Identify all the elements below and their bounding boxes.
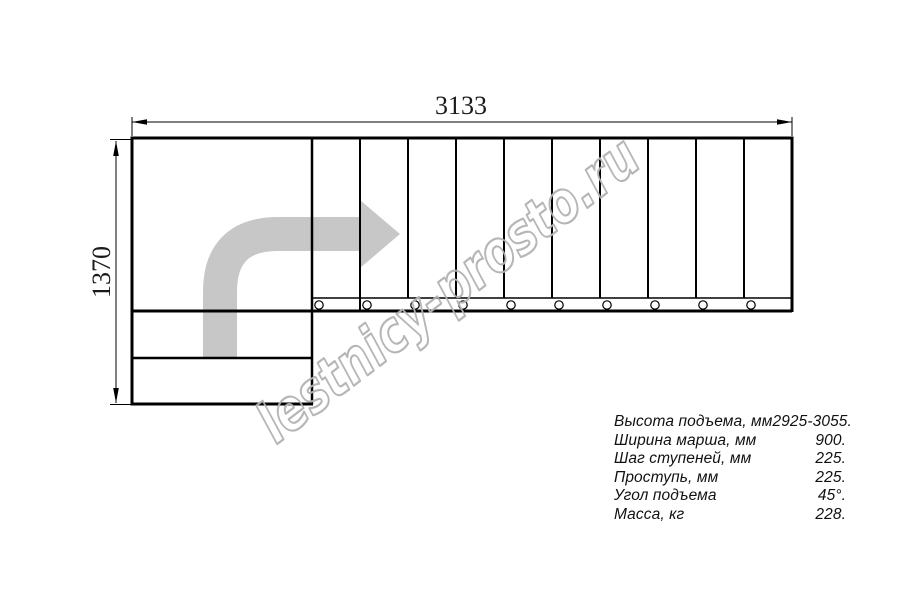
spec-row-tread-depth: Проступь, мм 225.: [614, 469, 846, 488]
spec-value: 225.: [815, 469, 846, 488]
spec-value: 2925-3055.: [772, 413, 851, 432]
spec-row-flight-width: Ширина марша, мм 900.: [614, 432, 846, 451]
stair-drawing-page: 3133 1370 lestnicy-prosto.ru Высота подъ…: [0, 0, 900, 600]
dimension-arrow-left: [132, 119, 147, 125]
spec-value: 225.: [815, 450, 846, 469]
spec-row-step-pitch: Шаг ступеней, мм 225.: [614, 450, 846, 469]
spec-label: Шаг ступеней, мм: [614, 450, 751, 469]
dimension-arrow-right: [777, 119, 792, 125]
baluster-marker: [651, 301, 659, 309]
spec-label: Масса, кг: [614, 506, 684, 525]
dimension-arrow-top: [113, 141, 119, 156]
left-dimension: 1370: [87, 140, 131, 405]
spec-row-rise-angle: Угол подъема 45°.: [614, 487, 846, 506]
spec-label: Высота подъема, мм: [614, 413, 772, 432]
spec-label: Угол подъема: [614, 487, 717, 506]
baluster-marker: [507, 301, 515, 309]
spec-label: Проступь, мм: [614, 469, 718, 488]
specs-table: Высота подъема, мм 2925-3055. Ширина мар…: [614, 413, 846, 525]
baluster-marker: [555, 301, 563, 309]
baluster-marker: [747, 301, 755, 309]
baluster-marker: [699, 301, 707, 309]
spec-value: 45°.: [818, 487, 846, 506]
spec-value: 900.: [815, 432, 846, 451]
top-dimension-value: 3133: [435, 91, 487, 120]
spec-value: 228.: [815, 506, 846, 525]
baluster-marker: [603, 301, 611, 309]
watermark-text: lestnicy-prosto.ru: [244, 124, 652, 456]
spec-row-rise-height: Высота подъема, мм 2925-3055.: [614, 413, 846, 432]
baluster-marker: [315, 301, 323, 309]
direction-arrow-head: [360, 200, 400, 268]
dimension-arrow-bottom: [113, 388, 119, 403]
spec-label: Ширина марша, мм: [614, 432, 756, 451]
left-dimension-value: 1370: [87, 246, 116, 298]
top-dimension: 3133: [132, 91, 792, 136]
spec-row-mass: Масса, кг 228.: [614, 506, 846, 525]
